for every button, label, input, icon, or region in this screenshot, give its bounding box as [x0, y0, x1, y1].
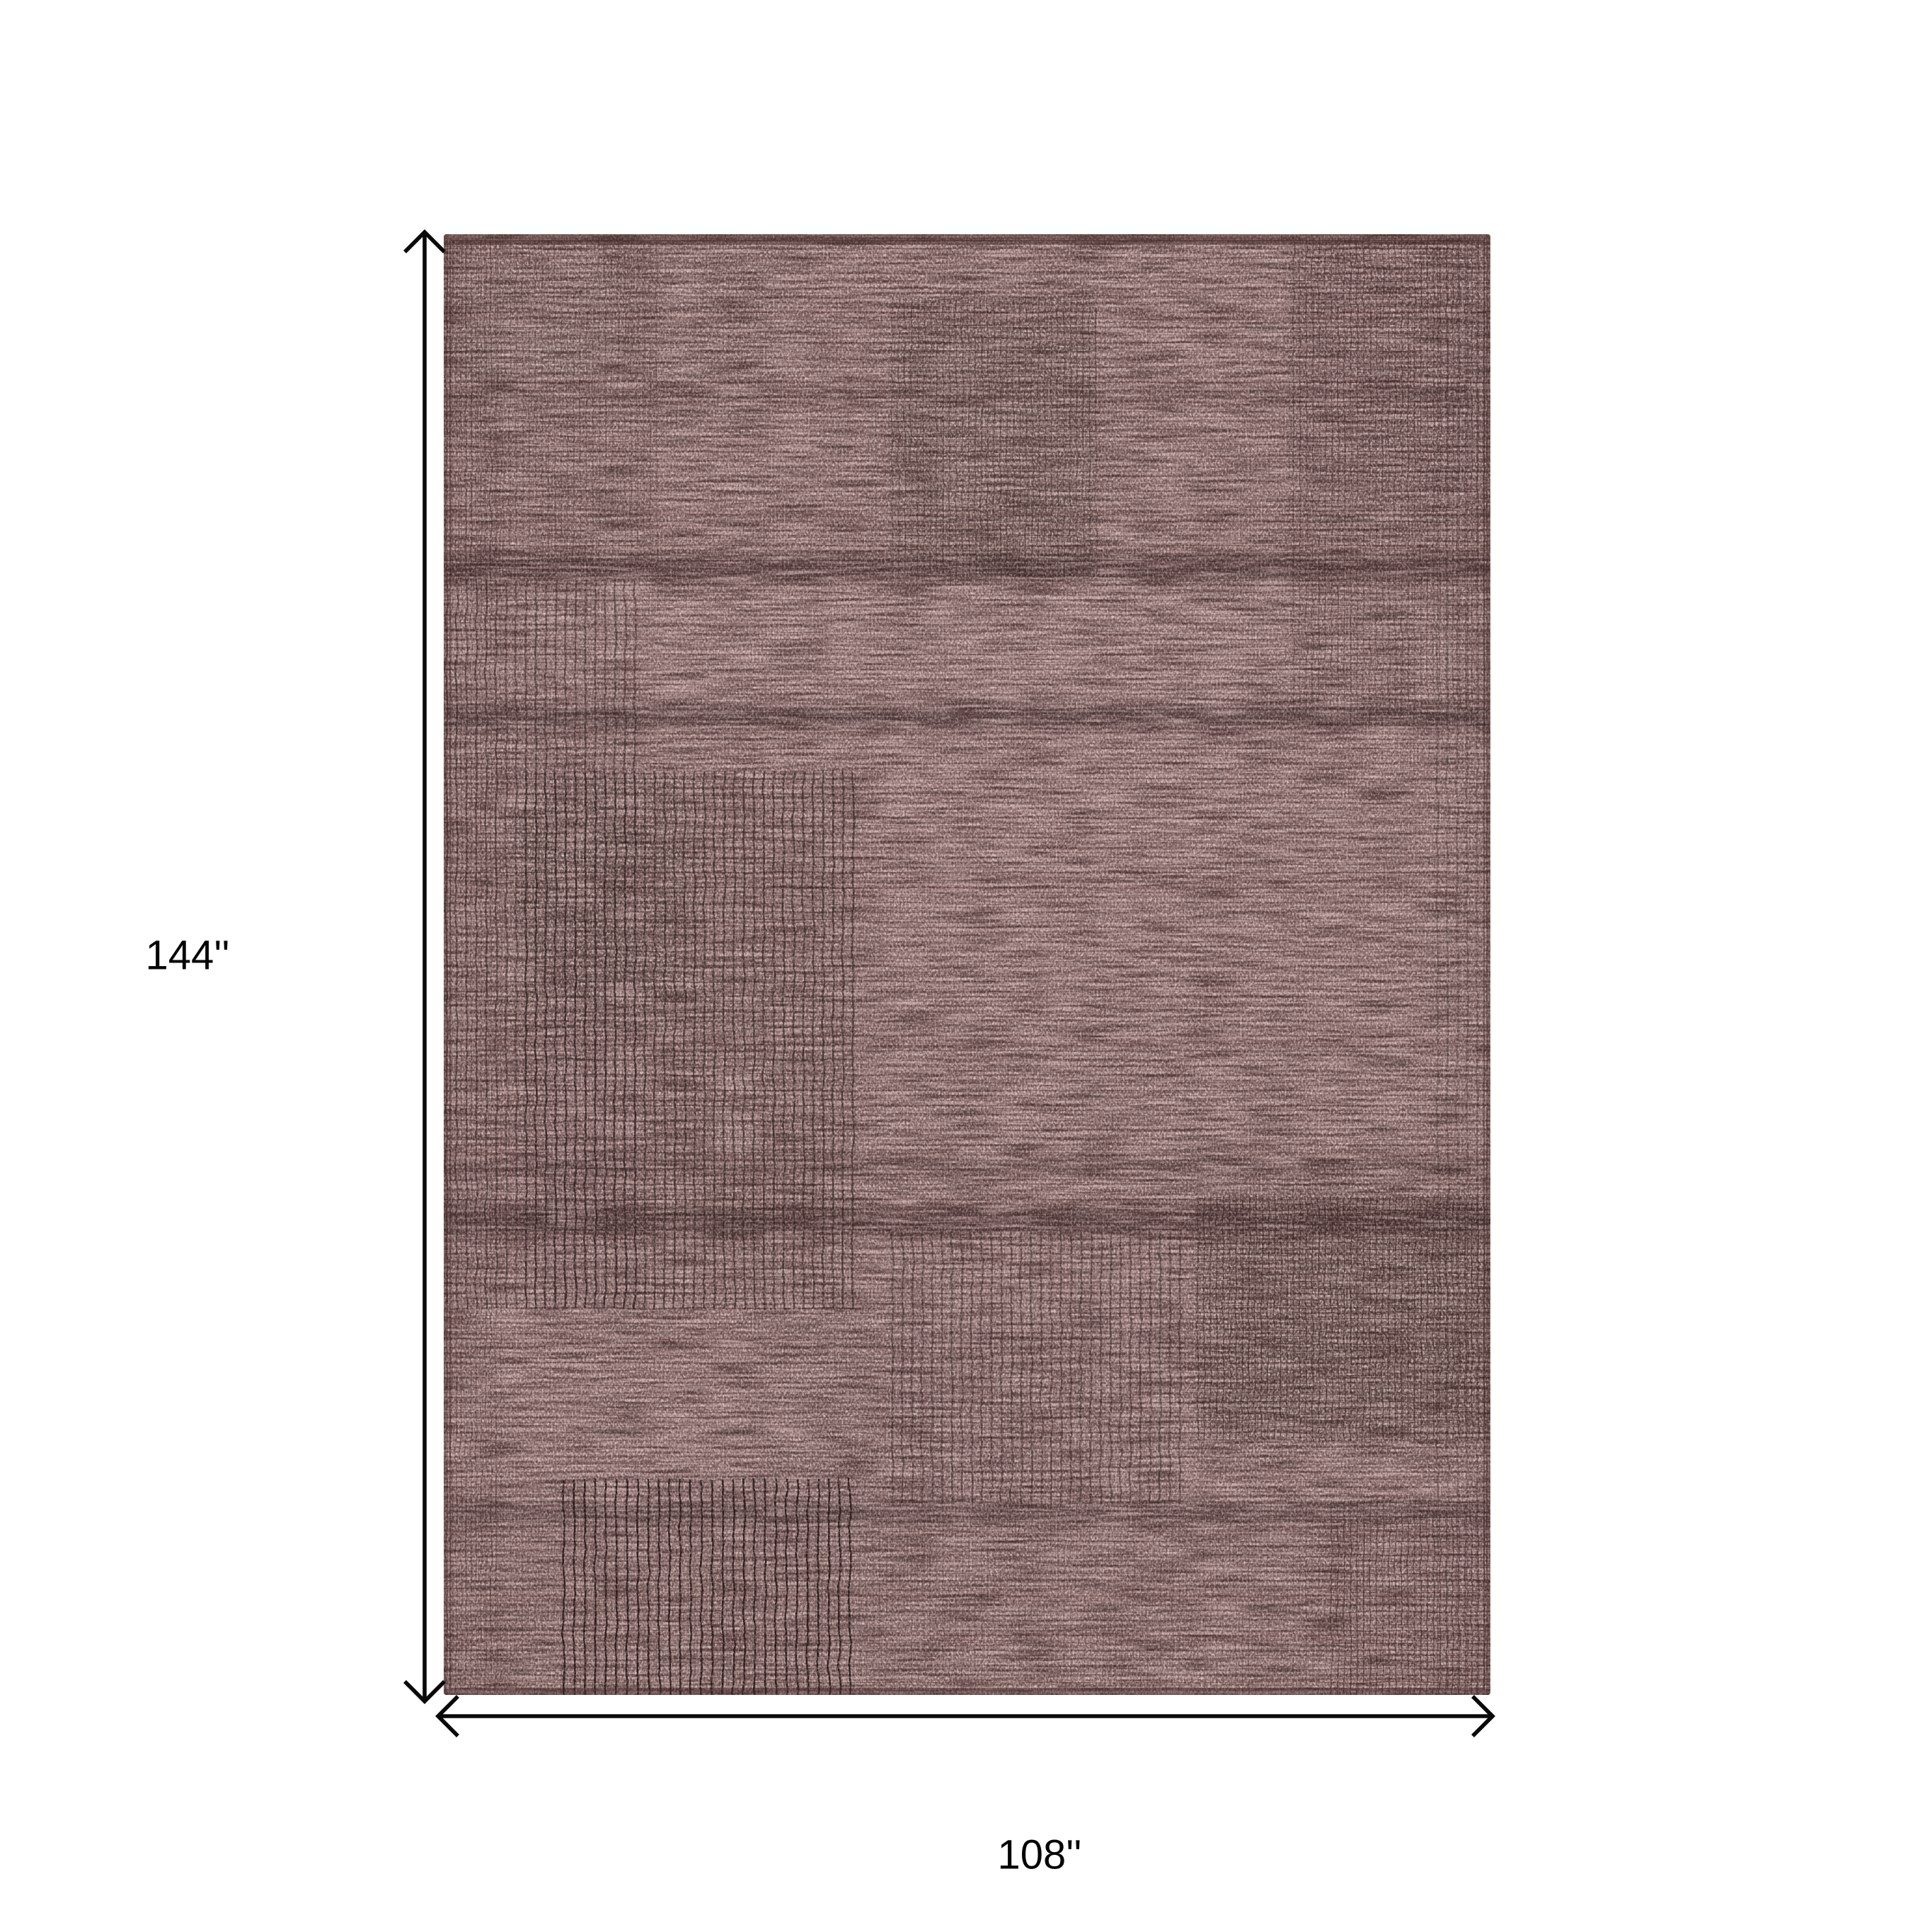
svg-text:144'': 144'': [146, 933, 230, 979]
svg-text:108'': 108'': [998, 1832, 1082, 1878]
